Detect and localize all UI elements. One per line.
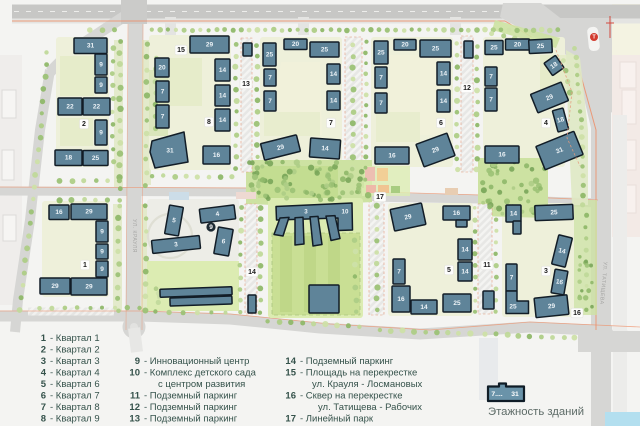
svg-text:- Квартал 1: - Квартал 1 — [50, 333, 100, 344]
svg-text:10: 10 — [342, 209, 349, 216]
svg-text:14: 14 — [330, 71, 338, 78]
svg-text:14: 14 — [440, 98, 448, 105]
svg-text:14: 14 — [440, 70, 448, 77]
svg-text:25: 25 — [490, 44, 498, 51]
svg-text:6: 6 — [439, 120, 443, 127]
svg-text:2: 2 — [41, 345, 46, 356]
svg-text:- Квартал 9: - Квартал 9 — [50, 414, 100, 425]
svg-text:6: 6 — [41, 391, 46, 402]
svg-text:29: 29 — [206, 41, 214, 48]
svg-text:15: 15 — [177, 47, 185, 54]
svg-text:2: 2 — [82, 121, 86, 128]
svg-text:- Квартал 2: - Квартал 2 — [50, 345, 100, 356]
svg-text:25: 25 — [432, 45, 440, 52]
svg-text:29: 29 — [548, 303, 556, 311]
svg-text:25: 25 — [92, 155, 100, 162]
svg-text:25: 25 — [509, 304, 517, 311]
svg-text:ул. Татищева - Рабочих: ул. Татищева - Рабочих — [318, 402, 422, 413]
svg-text:14: 14 — [285, 356, 296, 367]
svg-text:14: 14 — [461, 246, 469, 253]
svg-text:9: 9 — [99, 82, 103, 89]
svg-text:- Подземный паркинг: - Подземный паркинг — [300, 356, 394, 367]
svg-text:13: 13 — [242, 81, 250, 88]
svg-text:9: 9 — [99, 61, 103, 68]
svg-text:14: 14 — [510, 210, 518, 217]
svg-text:16: 16 — [397, 296, 405, 303]
svg-text:3: 3 — [544, 268, 548, 275]
svg-text:25: 25 — [266, 51, 274, 58]
svg-text:20: 20 — [514, 41, 522, 48]
svg-text:29: 29 — [51, 283, 59, 290]
svg-text:11: 11 — [130, 391, 141, 402]
svg-text:16: 16 — [498, 151, 506, 158]
svg-text:- Подземный паркинг: - Подземный паркинг — [144, 414, 238, 425]
svg-text:7: 7 — [329, 120, 333, 127]
svg-text:- Подземный паркинг: - Подземный паркинг — [144, 402, 238, 413]
svg-text:14: 14 — [219, 67, 227, 74]
svg-text:20: 20 — [401, 42, 409, 49]
svg-text:- Подземный паркинг: - Подземный паркинг — [144, 391, 238, 402]
svg-text:29: 29 — [85, 283, 93, 290]
svg-text:9: 9 — [100, 228, 104, 235]
svg-text:8: 8 — [207, 119, 211, 126]
svg-text:9: 9 — [100, 248, 104, 255]
svg-text:15: 15 — [285, 368, 296, 379]
svg-text:22: 22 — [93, 103, 101, 110]
svg-text:1: 1 — [41, 333, 47, 344]
svg-text:- Квартал 7: - Квартал 7 — [50, 391, 100, 402]
svg-text:8: 8 — [41, 414, 46, 425]
svg-text:- Квартал 8: - Квартал 8 — [50, 402, 100, 413]
svg-text:14: 14 — [321, 145, 329, 153]
svg-text:29: 29 — [85, 209, 93, 216]
svg-text:- Комплекс детского сада: - Комплекс детского сада — [144, 368, 257, 379]
svg-text:- Площадь на перекрестке: - Площадь на перекрестке — [300, 368, 417, 379]
svg-text:14: 14 — [330, 97, 338, 104]
svg-text:7: 7 — [379, 100, 383, 107]
svg-text:17: 17 — [285, 414, 296, 425]
svg-text:3: 3 — [41, 356, 46, 367]
svg-text:7: 7 — [161, 113, 165, 120]
svg-text:1: 1 — [83, 262, 87, 269]
svg-text:25: 25 — [453, 300, 461, 307]
svg-text:14: 14 — [219, 117, 227, 124]
svg-text:7....: 7.... — [491, 391, 502, 398]
svg-text:ул. Крауля - Лосмановых: ул. Крауля - Лосмановых — [312, 379, 423, 390]
svg-text:22: 22 — [66, 103, 74, 110]
svg-text:13: 13 — [129, 414, 140, 425]
svg-text:16: 16 — [213, 152, 221, 159]
svg-text:- Квартал 4: - Квартал 4 — [50, 368, 100, 379]
svg-text:- Сквер на перекрестке: - Сквер на перекрестке — [300, 391, 403, 402]
svg-text:10: 10 — [129, 368, 140, 379]
svg-text:14: 14 — [248, 269, 256, 276]
svg-text:31: 31 — [511, 391, 519, 398]
svg-text:25: 25 — [537, 43, 545, 50]
svg-text:16: 16 — [55, 209, 63, 216]
svg-text:7: 7 — [379, 74, 383, 81]
svg-text:31: 31 — [166, 148, 174, 155]
svg-text:14: 14 — [219, 92, 227, 99]
svg-text:Этажность зданий: Этажность зданий — [488, 406, 584, 418]
svg-text:7: 7 — [510, 274, 514, 281]
svg-text:16: 16 — [573, 310, 581, 317]
svg-text:5: 5 — [447, 267, 451, 274]
svg-text:14: 14 — [461, 268, 469, 275]
svg-text:16: 16 — [453, 210, 461, 217]
svg-text:5: 5 — [41, 379, 47, 390]
svg-text:18: 18 — [65, 155, 73, 162]
svg-text:7: 7 — [489, 73, 493, 80]
svg-text:7: 7 — [41, 402, 46, 413]
svg-text:7: 7 — [268, 98, 272, 105]
svg-text:4: 4 — [41, 368, 47, 379]
svg-text:9: 9 — [209, 224, 213, 231]
svg-text:4: 4 — [544, 120, 548, 127]
svg-text:7: 7 — [397, 268, 401, 275]
svg-text:9: 9 — [135, 356, 140, 367]
svg-text:25: 25 — [377, 49, 385, 56]
svg-text:- Линейный парк: - Линейный парк — [300, 414, 374, 425]
svg-text:25: 25 — [550, 209, 558, 216]
svg-text:7: 7 — [161, 88, 165, 95]
svg-text:14: 14 — [420, 304, 428, 311]
svg-text:- Инновационный центр: - Инновационный центр — [144, 356, 249, 367]
svg-text:11: 11 — [483, 262, 491, 269]
svg-text:25: 25 — [321, 46, 329, 53]
svg-text:31: 31 — [87, 43, 95, 50]
svg-text:9: 9 — [99, 129, 103, 136]
svg-text:12: 12 — [129, 402, 140, 413]
svg-text:3: 3 — [304, 209, 308, 216]
svg-text:9: 9 — [100, 266, 104, 273]
svg-text:16: 16 — [285, 391, 296, 402]
svg-text:7: 7 — [268, 74, 272, 81]
svg-text:16: 16 — [388, 152, 396, 159]
svg-text:12: 12 — [463, 85, 471, 92]
svg-text:УЛ. КРАУЛЯ: УЛ. КРАУЛЯ — [131, 219, 137, 253]
svg-text:с центром развития: с центром развития — [158, 379, 245, 390]
svg-text:20: 20 — [158, 64, 166, 71]
svg-text:17: 17 — [376, 194, 384, 201]
svg-text:- Квартал 3: - Квартал 3 — [50, 356, 100, 367]
svg-text:20: 20 — [292, 41, 300, 48]
svg-text:- Квартал 6: - Квартал 6 — [50, 379, 100, 390]
svg-text:7: 7 — [489, 96, 493, 103]
